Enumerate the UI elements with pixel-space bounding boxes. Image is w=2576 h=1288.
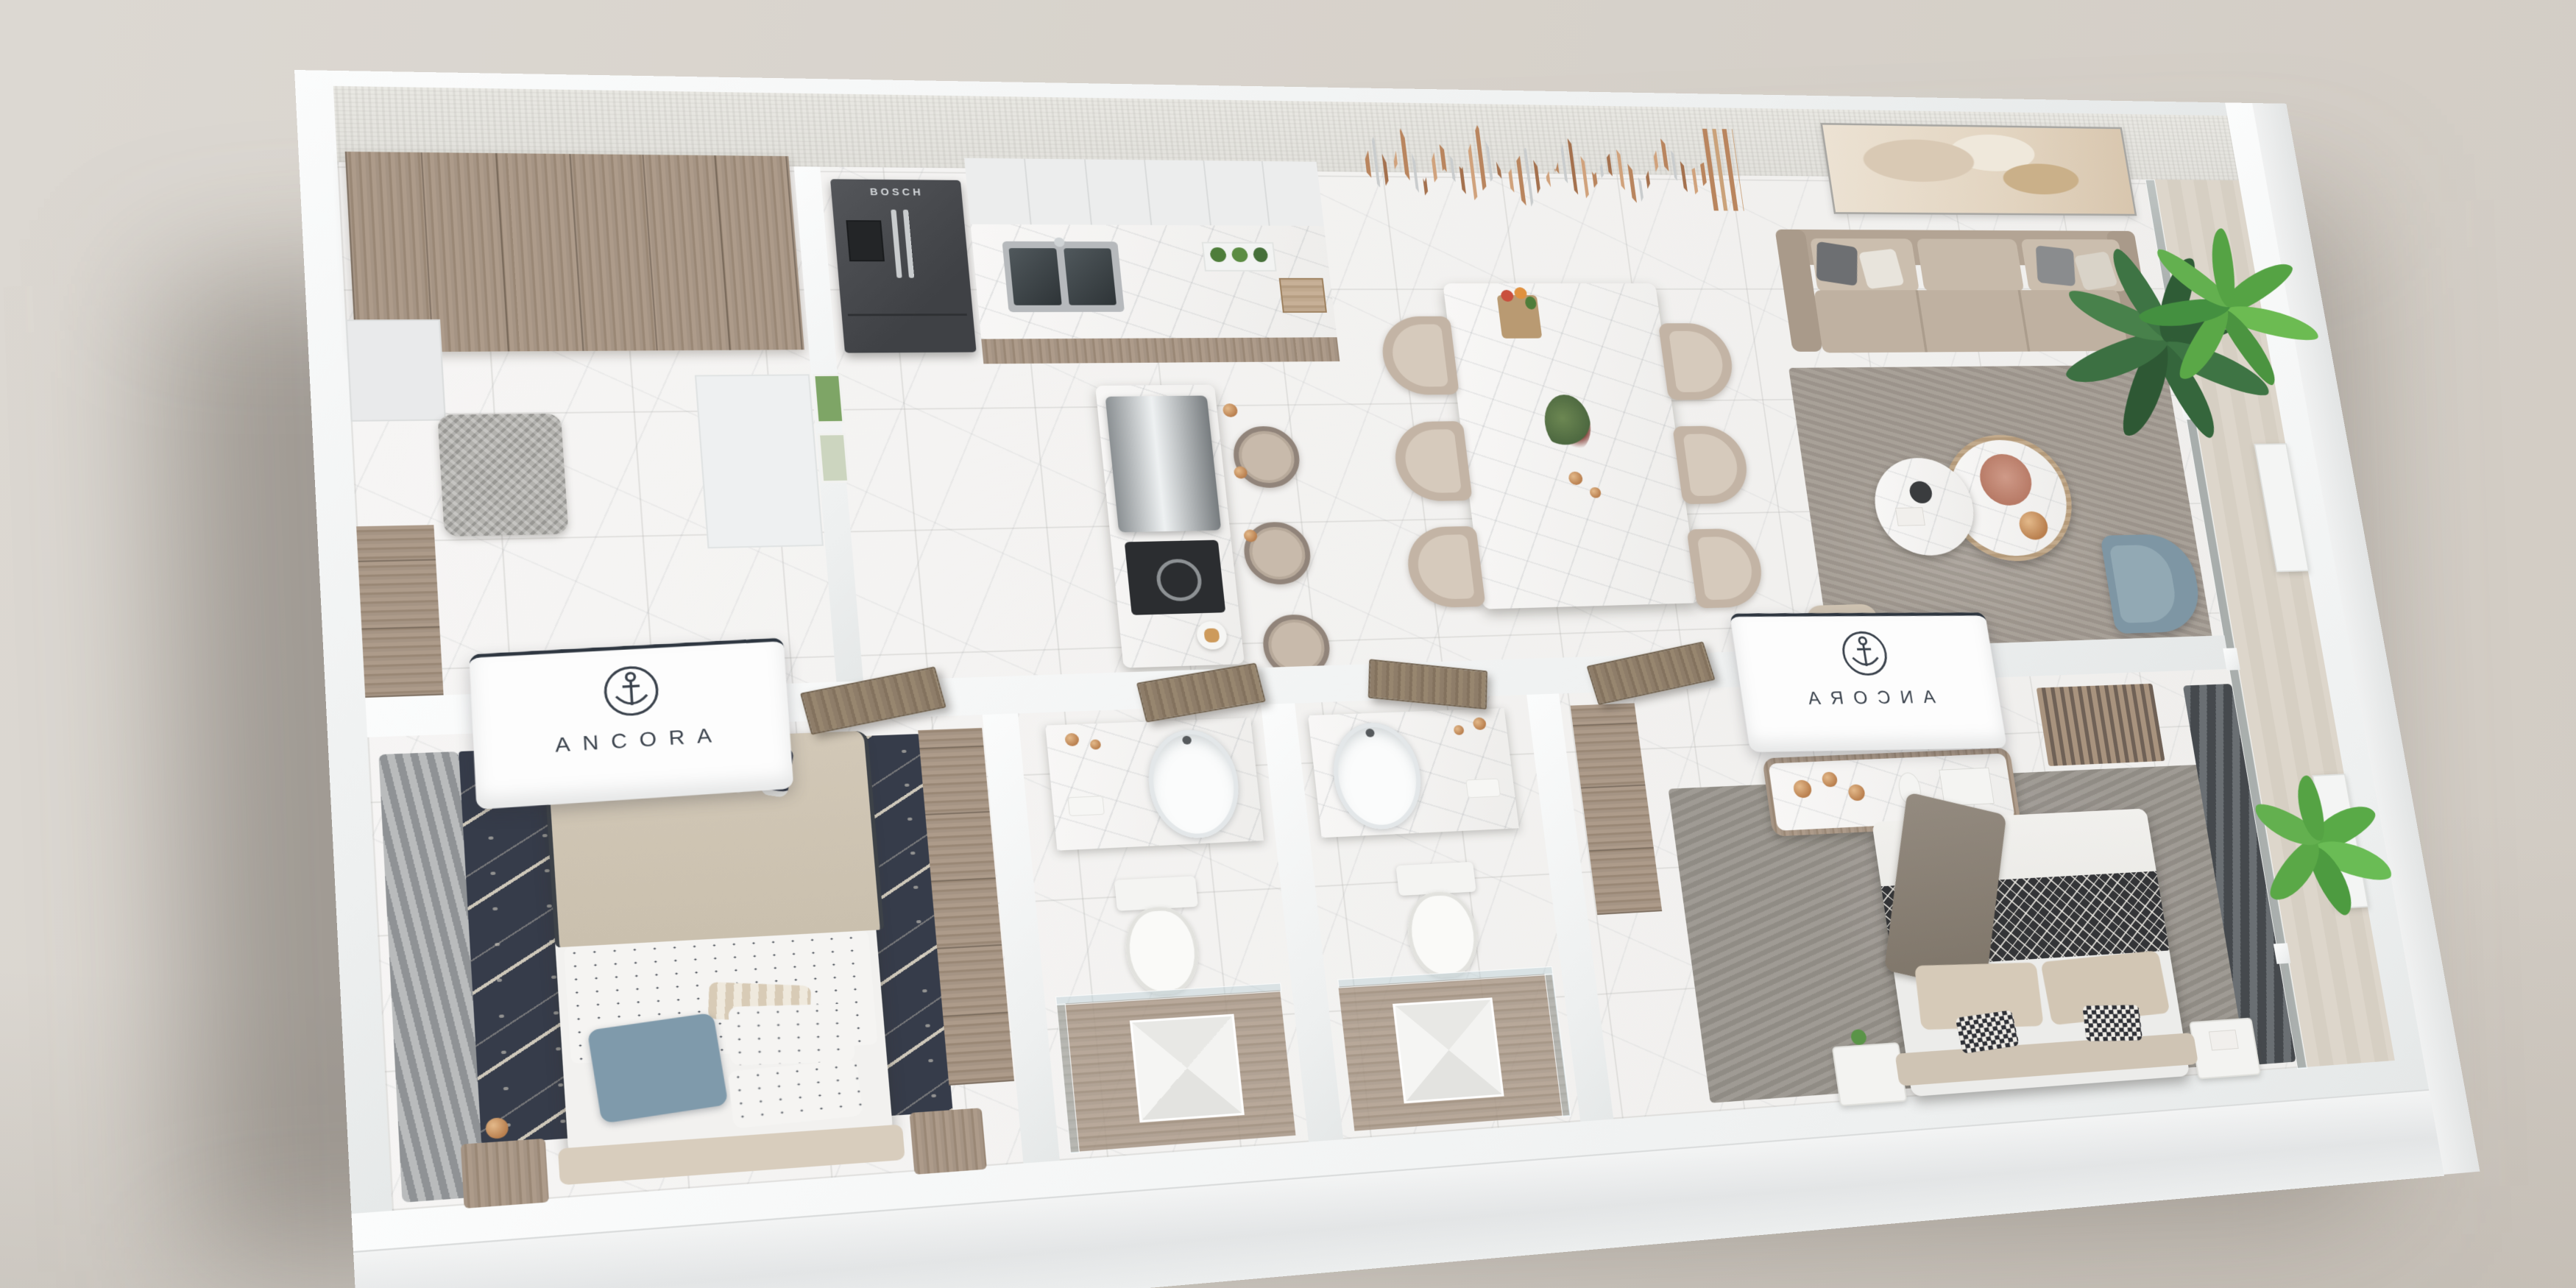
- herb: [1253, 247, 1269, 262]
- decor-book: [2209, 1030, 2239, 1051]
- houndstooth-pillow: [2082, 1005, 2142, 1041]
- apartment-cutaway: BOSCH: [294, 70, 2429, 1251]
- botanical-frame: [813, 374, 845, 423]
- closet-side-wardrobe: [356, 525, 444, 698]
- anchor-logo-icon: [1833, 626, 1897, 682]
- sink-basin: [1008, 248, 1061, 305]
- sofa-pillow-grey: [2036, 245, 2076, 286]
- toilet-tank: [1114, 876, 1198, 911]
- burner: [1155, 559, 1204, 602]
- botanical-frame: [818, 433, 850, 483]
- gas-cooktop: [1125, 540, 1226, 615]
- chair-seat: [1697, 536, 1756, 600]
- floorplan-render: BOSCH: [0, 0, 2576, 1288]
- closet-window-blind: [345, 319, 446, 422]
- shower-tray: [1393, 997, 1504, 1103]
- open-book: [1939, 768, 1994, 807]
- herb-planter: [1202, 242, 1277, 272]
- toast: [1203, 628, 1220, 643]
- chair-seat: [1669, 331, 1727, 392]
- grocery-bag: [1497, 295, 1543, 339]
- fridge-handle: [891, 210, 902, 278]
- anchor-logo-icon: [595, 658, 667, 724]
- nightstand-wood: [461, 1139, 549, 1209]
- decor-book: [1895, 507, 1925, 526]
- chair-seat: [1402, 429, 1462, 493]
- herb: [1209, 247, 1227, 262]
- ancora-sign-master: ANCORA: [1730, 612, 2007, 752]
- closet-white-cabinet: [695, 374, 824, 548]
- chair-seat: [1415, 534, 1475, 600]
- wood-slat-panel: [2037, 684, 2165, 766]
- nightstand-wood: [910, 1108, 987, 1175]
- fridge: BOSCH: [830, 179, 977, 353]
- range-hood: [1105, 395, 1222, 532]
- fridge-handle: [903, 210, 915, 278]
- fridge-ice-dispenser: [846, 220, 885, 261]
- herb: [1231, 247, 1249, 262]
- ancora-sign-bedroom1: ANCORA: [469, 637, 793, 810]
- dotted-pillow: [728, 1003, 854, 1065]
- towel: [1067, 796, 1104, 816]
- faucet: [1054, 238, 1065, 247]
- abstract-painting: [1820, 123, 2137, 216]
- chair-seat: [1682, 434, 1741, 496]
- mirrored-sign-content: ANCORA: [1730, 615, 2000, 710]
- fridge-brand-label: BOSCH: [831, 186, 962, 198]
- sofa-pillow-dark: [1816, 241, 1858, 286]
- kitchen-upper-cabinets: [964, 158, 1324, 226]
- decor-vase: [1908, 481, 1933, 504]
- blue-pillow: [587, 1013, 729, 1124]
- sofa-back-cushion: [1917, 238, 2025, 291]
- kitchen-base-cabinets: [981, 337, 1340, 364]
- woven-lounge-chair: [437, 414, 568, 537]
- nightstand-white: [1832, 1042, 1908, 1106]
- double-sink: [1002, 241, 1125, 312]
- sink-basin: [1064, 248, 1117, 305]
- ancora-text: ANCORA: [473, 720, 790, 762]
- armchair-seat: [2109, 545, 2180, 623]
- ancora-text-mirrored: ANCORA: [1741, 686, 2000, 710]
- towel: [1465, 778, 1501, 798]
- chair-seat: [1389, 324, 1448, 386]
- shower-tray: [1130, 1014, 1245, 1123]
- greens: [1524, 297, 1537, 310]
- fridge-freezer-seam: [848, 314, 967, 316]
- toilet-tank: [1395, 862, 1476, 896]
- wood-crate: [1279, 278, 1327, 313]
